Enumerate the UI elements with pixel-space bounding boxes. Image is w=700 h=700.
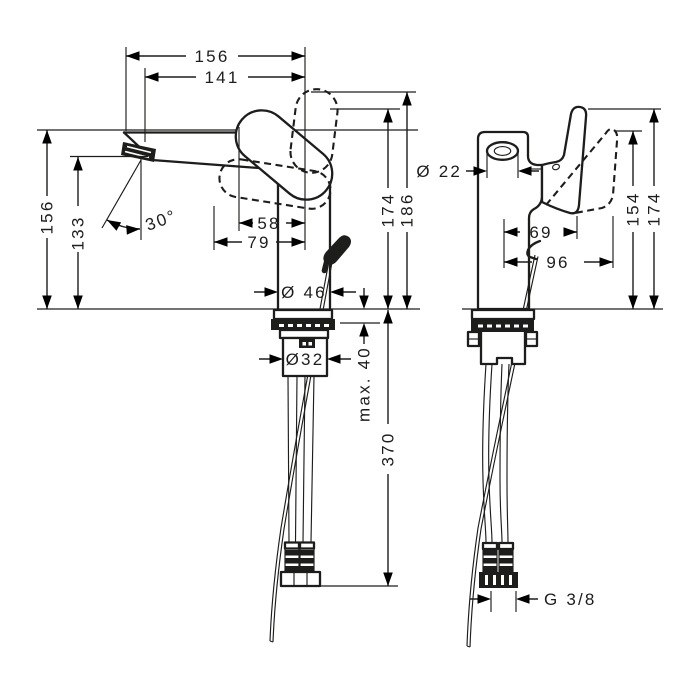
connector-nut bbox=[281, 572, 320, 586]
dim-outlet-angle-arc bbox=[105, 216, 141, 235]
label-center-offset-outer: 79 bbox=[247, 233, 270, 252]
washer bbox=[280, 330, 328, 338]
label-center-offset-inner: 58 bbox=[257, 214, 280, 233]
base-flange bbox=[472, 310, 534, 319]
dimension-lines bbox=[42, 51, 659, 604]
hose-collar bbox=[300, 543, 314, 549]
shank-front bbox=[481, 332, 525, 364]
hose-collar bbox=[483, 543, 497, 549]
angle-ray bbox=[102, 160, 141, 228]
aerator-front-outer bbox=[487, 142, 518, 160]
label-connection-thread: G 3/8 bbox=[544, 590, 597, 609]
label-hose-length: 370 bbox=[379, 432, 398, 467]
hose-collar bbox=[285, 543, 299, 549]
front-view bbox=[467, 107, 586, 647]
label-max-deck-thickness: max. 40 bbox=[355, 346, 374, 422]
label-height-deck: 156 bbox=[38, 200, 57, 235]
base-flange bbox=[274, 310, 332, 319]
label-height-handle-side: 174 bbox=[379, 193, 398, 228]
label-height-outlet: 133 bbox=[69, 216, 88, 251]
handle-side-view bbox=[225, 100, 343, 211]
drawing-canvas: 156 141 156 133 30° 58 79 Ø 46 174 186 Ø… bbox=[0, 0, 700, 700]
front-mounting-hardware bbox=[468, 310, 537, 364]
label-base-diameter: Ø 46 bbox=[281, 283, 327, 302]
handle-front-view bbox=[542, 107, 586, 213]
dim-connection-thread bbox=[470, 594, 538, 604]
side-view bbox=[121, 100, 351, 642]
label-center-to-handle-tilted: 96 bbox=[546, 253, 569, 272]
hose-collar bbox=[499, 543, 513, 549]
thread-nut bbox=[479, 572, 518, 588]
front-supply-hoses bbox=[479, 364, 518, 588]
label-reach-total: 156 bbox=[195, 47, 230, 66]
label-aerator-diameter: Ø 22 bbox=[416, 162, 462, 181]
rod-clamp bbox=[299, 339, 315, 348]
label-reach-aerator: 141 bbox=[205, 68, 240, 87]
drain-lever-side bbox=[322, 235, 351, 273]
label-height-handle-front: 174 bbox=[645, 192, 664, 227]
label-height-handle-raised: 186 bbox=[398, 193, 417, 228]
side-supply-hoses bbox=[281, 376, 320, 586]
faucet-spec-drawing: 156 141 156 133 30° 58 79 Ø 46 174 186 Ø… bbox=[0, 0, 700, 700]
label-shank-diameter: Ø32 bbox=[286, 350, 325, 369]
label-center-to-handle: 69 bbox=[529, 223, 552, 242]
dim-max-deck-thickness bbox=[359, 288, 369, 344]
label-height-handle-tilted-front: 154 bbox=[624, 192, 643, 227]
label-outlet-angle: 30° bbox=[143, 206, 180, 235]
